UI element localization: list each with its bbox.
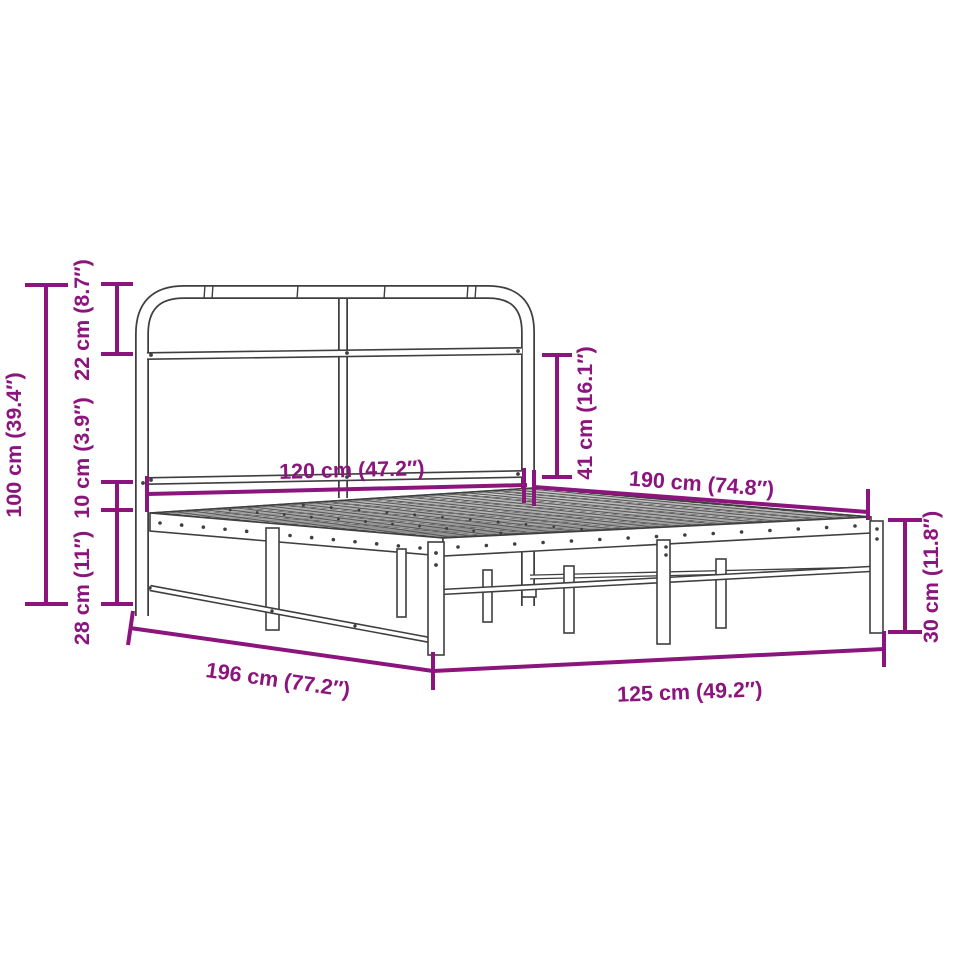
headboard: [141, 285, 528, 616]
dimension-headboard-top: 22 cm (8.7″): [70, 259, 133, 380]
dimension-label-clearance: 28 cm (11″): [70, 531, 94, 645]
center-leg-2: [564, 566, 574, 633]
dimension-label-side-height: 30 cm (11.8″): [919, 511, 943, 643]
dimension-label-panel-height: 41 cm (16.1″): [573, 346, 597, 479]
front-foot-corner-leg: [428, 542, 444, 655]
dimension-panel-height: 41 cm (16.1″): [542, 346, 597, 479]
dimension-label-total-length: 196 cm (77.2″): [204, 658, 351, 702]
diagram-canvas: 100 cm (39.4″) 22 cm (8.7″) 10 cm (3.9″)…: [0, 0, 955, 955]
front-lower-rail-fill: [150, 588, 430, 640]
dimension-label-headboard-top: 22 cm (8.7″): [70, 259, 94, 380]
front-mid-leg-2: [397, 549, 406, 617]
dimension-total-length: 196 cm (77.2″): [128, 611, 433, 702]
dimension-total-height: 100 cm (39.4″): [2, 285, 68, 604]
far-mid-leg: [716, 559, 726, 628]
dimension-label-headboard-width: 120 cm (47.2″): [279, 456, 425, 484]
dimension-clearance: 28 cm (11″): [70, 510, 133, 645]
foot-center-leg: [657, 540, 670, 644]
dimension-label-total-height: 100 cm (39.4″): [2, 372, 26, 517]
dimension-label-headboard-gap: 10 cm (3.9″): [70, 397, 94, 518]
bed-frame-dimension-diagram: 100 cm (39.4″) 22 cm (8.7″) 10 cm (3.9″)…: [0, 0, 955, 955]
center-leg-1: [483, 570, 492, 622]
dimension-headboard-gap: 10 cm (3.9″): [70, 397, 133, 518]
dimension-label-total-width: 125 cm (49.2″): [617, 677, 763, 707]
lower-rails: [148, 569, 870, 640]
headboard-outer-tube: [142, 292, 528, 616]
bed-frame-drawing: [141, 285, 883, 655]
headboard-outer-tube-fill: [142, 292, 528, 616]
dimension-side-height: 30 cm (11.8″): [888, 511, 943, 643]
